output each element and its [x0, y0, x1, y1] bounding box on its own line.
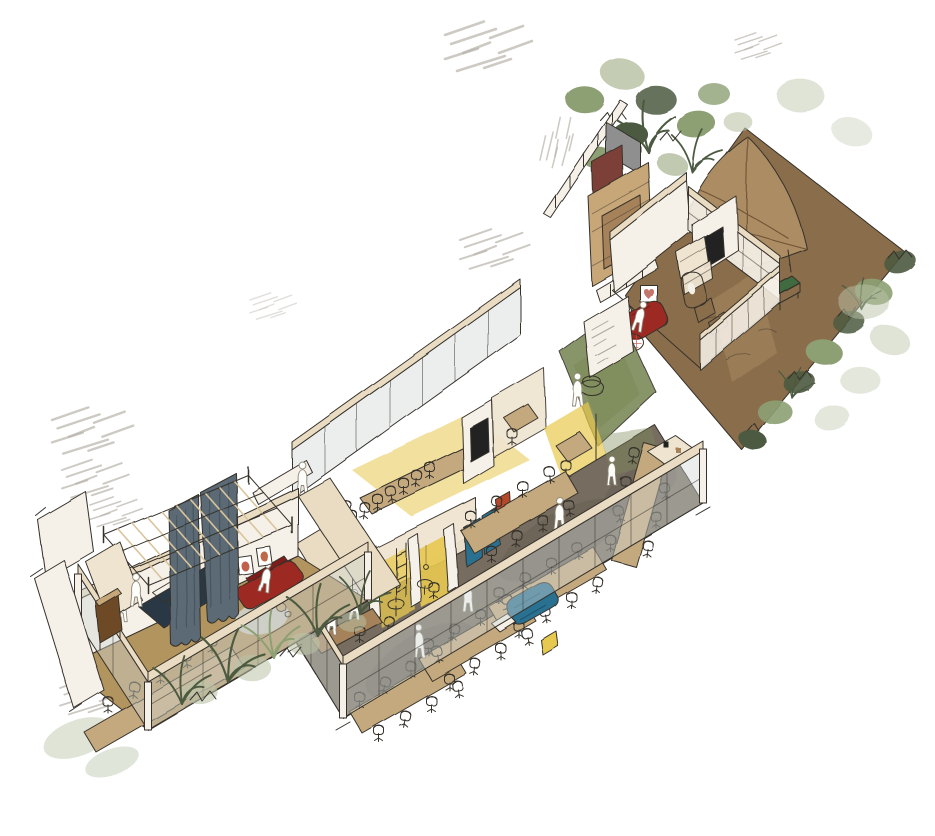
- chair: [398, 710, 411, 728]
- heart-artwork: [640, 285, 657, 302]
- sketch-canvas: [0, 0, 935, 836]
- corner-post: [145, 682, 152, 730]
- chair: [566, 592, 576, 609]
- chair: [642, 540, 654, 558]
- chair: [426, 696, 436, 713]
- axonometric-sketch: [0, 0, 935, 836]
- sideboard-object: [664, 442, 669, 448]
- chair: [496, 644, 506, 661]
- chair: [591, 576, 603, 594]
- corner-post: [340, 664, 347, 718]
- chair: [374, 726, 384, 743]
- yellow-seat: [541, 631, 558, 655]
- corner-post: [700, 449, 707, 503]
- chair: [469, 658, 481, 676]
- sideboard-object: [676, 448, 681, 453]
